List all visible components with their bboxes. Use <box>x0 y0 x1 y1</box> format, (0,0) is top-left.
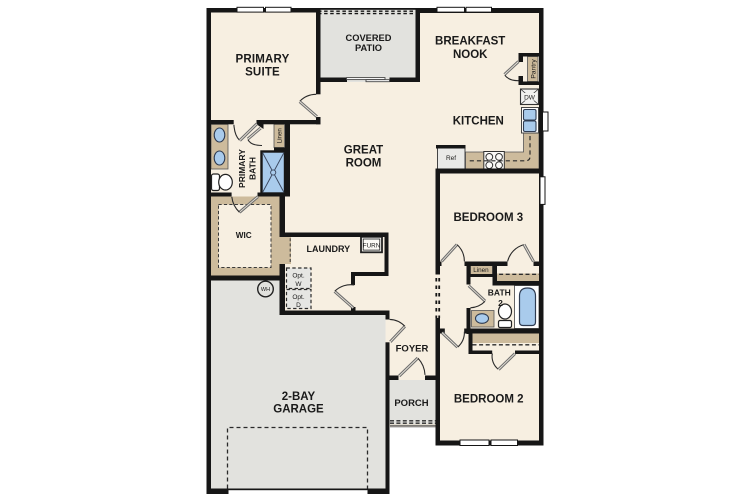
svg-text:2: 2 <box>498 298 503 308</box>
svg-text:SUITE: SUITE <box>245 67 280 79</box>
svg-text:ROOM: ROOM <box>346 158 382 170</box>
svg-text:D: D <box>296 302 301 309</box>
svg-text:Ref: Ref <box>446 155 456 162</box>
svg-text:PRIMARY: PRIMARY <box>237 149 247 188</box>
svg-text:BREAKFAST: BREAKFAST <box>435 35 505 47</box>
svg-text:WH: WH <box>261 287 270 293</box>
svg-text:Opt.: Opt. <box>292 294 304 301</box>
svg-text:Linen: Linen <box>473 267 489 274</box>
svg-text:COVERED: COVERED <box>346 33 392 43</box>
svg-text:BEDROOM 2: BEDROOM 2 <box>454 393 524 405</box>
svg-text:BATH: BATH <box>248 157 258 180</box>
svg-text:BATH: BATH <box>488 288 511 298</box>
svg-text:PRIMARY: PRIMARY <box>235 54 289 66</box>
svg-text:Pantry: Pantry <box>530 59 537 79</box>
svg-text:GARAGE: GARAGE <box>273 404 324 416</box>
svg-text:FOYER: FOYER <box>396 344 429 355</box>
svg-text:BEDROOM 3: BEDROOM 3 <box>453 212 523 224</box>
svg-text:NOOK: NOOK <box>453 49 488 61</box>
svg-text:WIC: WIC <box>236 231 252 240</box>
svg-text:PORCH: PORCH <box>394 398 428 409</box>
svg-text:GREAT: GREAT <box>344 145 383 157</box>
svg-text:LAUNDRY: LAUNDRY <box>306 244 350 254</box>
svg-text:DW: DW <box>524 95 536 102</box>
svg-text:Opt.: Opt. <box>292 273 304 280</box>
svg-text:PATIO: PATIO <box>355 43 382 53</box>
svg-text:Linen: Linen <box>277 128 284 144</box>
svg-text:W: W <box>295 281 302 288</box>
svg-text:KITCHEN: KITCHEN <box>453 116 504 128</box>
svg-text:FURN: FURN <box>363 242 381 249</box>
svg-text:2-BAY: 2-BAY <box>282 391 316 403</box>
